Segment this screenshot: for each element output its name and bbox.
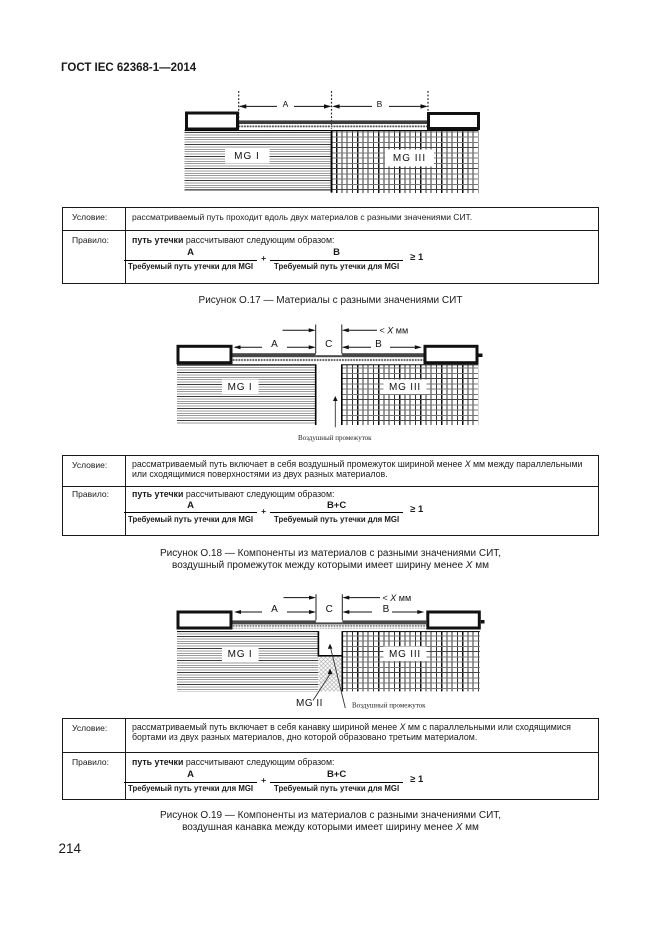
svg-text:C: C <box>326 604 333 615</box>
svg-text:< X мм: < X мм <box>380 325 409 335</box>
svg-text:A: A <box>283 99 289 109</box>
svg-text:MG I: MG I <box>228 382 253 393</box>
svg-text:B: B <box>383 604 390 615</box>
svg-text:MG III: MG III <box>389 382 421 393</box>
svg-text:MG I: MG I <box>234 151 260 162</box>
svg-text:B: B <box>377 99 383 109</box>
svg-text:MG I: MG I <box>228 649 253 660</box>
svg-text:MG III: MG III <box>393 153 426 164</box>
svg-text:C: C <box>325 339 332 350</box>
svg-text:MG II: MG II <box>296 698 323 709</box>
svg-text:Воздушный промежуток: Воздушный промежуток <box>352 702 426 710</box>
svg-text:MG III: MG III <box>389 649 421 660</box>
svg-text:Воздушный промежуток: Воздушный промежуток <box>298 434 372 442</box>
svg-text:A: A <box>271 339 278 350</box>
svg-text:B: B <box>375 339 382 350</box>
svg-text:A: A <box>271 604 278 615</box>
svg-text:< X мм: < X мм <box>383 593 412 603</box>
